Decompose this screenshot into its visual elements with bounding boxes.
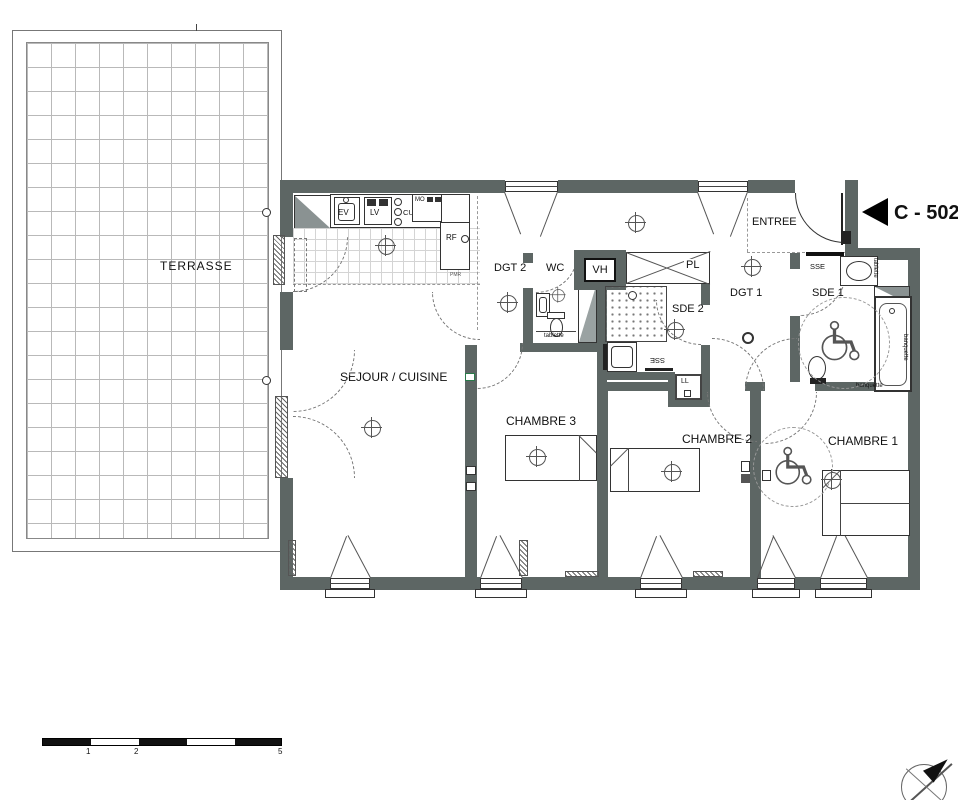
terrace-axis-tick xyxy=(196,24,197,31)
window-top-2-glass xyxy=(698,186,748,187)
kitchen-label-lv: LV xyxy=(370,208,379,217)
kitchen-label-ev: EV xyxy=(338,208,349,217)
window-top-1-glass xyxy=(505,186,558,187)
duct-box-kitchen-corner xyxy=(294,195,331,229)
wall-sde2-bottom xyxy=(603,372,673,380)
wall-ch3-ch2 xyxy=(597,383,608,590)
radiator xyxy=(519,540,528,576)
window-swing xyxy=(772,535,795,578)
wall-top-2 xyxy=(558,180,698,193)
sde1-sink-bowl xyxy=(846,261,872,281)
terrace-drain-symbol xyxy=(262,208,271,217)
ceiling-light-icon xyxy=(378,238,395,255)
window-swing xyxy=(347,535,370,578)
sejour-hall-door-swing xyxy=(432,292,480,340)
room-label-chambre3: CHAMBRE 3 xyxy=(506,414,576,428)
radiator xyxy=(288,540,296,576)
scale-label-1: 1 xyxy=(86,747,90,756)
entree-zone-boundary xyxy=(747,198,748,252)
duct-box-vh-shaft xyxy=(578,285,597,343)
dgt1-door-stop xyxy=(742,332,754,344)
wall-socket xyxy=(465,373,475,381)
wall-bottom-4 xyxy=(682,577,757,590)
kitchen-label-mo: MO xyxy=(415,197,425,203)
wc-sink-bowl xyxy=(539,297,547,313)
ceiling-light-icon xyxy=(744,259,761,276)
sde1-shelf-bar xyxy=(806,252,844,256)
washing-machine-label-ll: LL xyxy=(681,378,689,385)
window-bottom-4-glass xyxy=(757,583,795,584)
washing-machine-symbol xyxy=(684,390,691,397)
hob-burner xyxy=(394,218,402,226)
entrance-door-swing xyxy=(795,193,845,243)
radiator xyxy=(275,396,288,478)
wall-left-1 xyxy=(280,193,293,237)
room-label-pl: PL xyxy=(684,259,701,271)
sde2-shelf xyxy=(645,368,673,371)
wall-top-1 xyxy=(280,180,505,193)
room-label-sejour: SEJOUR / CUISINE xyxy=(340,370,447,384)
window-sill xyxy=(635,589,687,598)
chambre1-bed-mid-line xyxy=(840,503,910,504)
wall-ll-niche-bottom xyxy=(668,400,710,407)
french-door-swing-upper xyxy=(293,350,355,412)
scale-bar-segment xyxy=(43,739,91,745)
window-swing xyxy=(844,535,867,578)
unit-marker-arrow-icon xyxy=(862,198,888,226)
bathtub-faucet xyxy=(889,308,895,314)
window-top-1-swing xyxy=(540,192,558,237)
microwave-knob xyxy=(427,197,433,202)
ceiling-light-icon xyxy=(664,464,681,481)
wall-left-2 xyxy=(280,292,293,350)
wall-sde1-left-top xyxy=(790,253,800,269)
window-bottom-2-glass xyxy=(480,583,522,584)
room-label-chambre1: CHAMBRE 1 xyxy=(828,434,898,448)
duct-triangle xyxy=(579,286,596,342)
vh-label-box: VH xyxy=(584,258,616,282)
window-top-2-swing xyxy=(730,192,748,237)
hob-burner xyxy=(394,208,402,216)
window-bottom-5-glass xyxy=(820,583,867,584)
room-label-entree: ENTREE xyxy=(752,216,797,228)
ceiling-light-icon xyxy=(529,449,546,466)
french-door-swing-lower xyxy=(293,416,355,478)
microwave-knob xyxy=(435,197,441,202)
ceiling-light-icon xyxy=(500,295,517,312)
chambre3-door-swing xyxy=(477,343,523,389)
dgt1-door-swing-right xyxy=(745,338,797,390)
ceiling-light-icon xyxy=(628,215,645,232)
entrance-door-closer xyxy=(842,231,851,244)
chambre3-bed xyxy=(505,435,597,481)
wall-bottom-3 xyxy=(522,577,640,590)
window-bottom-1-glass xyxy=(330,583,370,584)
bathtub-label-banquette-side: banquette xyxy=(902,334,908,361)
ceiling-light-icon xyxy=(824,472,841,489)
sde1-label-tablette: tablette xyxy=(872,258,878,278)
wheelchair-icon xyxy=(818,320,862,364)
room-label-dgt1: DGT 1 xyxy=(730,287,762,299)
window-sill xyxy=(752,589,800,598)
wall-top-3 xyxy=(748,180,795,193)
wall-bottom-2 xyxy=(370,577,480,590)
radiator xyxy=(693,571,723,577)
window-sill xyxy=(815,589,872,598)
dishwasher-knob xyxy=(367,199,376,206)
window-swing xyxy=(659,535,682,578)
sde2-sink-bowl xyxy=(611,346,633,368)
window-sill xyxy=(325,589,375,598)
kitchen-label-rf: RF xyxy=(446,233,457,242)
terrace-tile-grid xyxy=(26,42,269,539)
radiator xyxy=(565,571,599,577)
chambre2-bed xyxy=(610,448,700,492)
wall-wc-left xyxy=(523,288,533,345)
ceiling-light-icon xyxy=(364,420,381,437)
window-bottom-3-glass xyxy=(640,583,682,584)
sde2-shower-drain xyxy=(628,291,637,300)
window-swing xyxy=(640,536,657,578)
wall-socket xyxy=(762,470,771,481)
floor-plan: TERRASSE xyxy=(0,0,958,800)
terrace-drain-symbol xyxy=(262,376,271,385)
wall-sde2-right-top xyxy=(701,283,710,305)
chambre3-bed-pillow-line xyxy=(579,435,580,481)
ceiling-light-icon xyxy=(552,289,565,302)
room-label-dgt2: DGT 2 xyxy=(494,262,526,274)
window-sill xyxy=(475,589,527,598)
wall-entrance-right xyxy=(845,193,858,253)
wall-top-4 xyxy=(845,180,858,193)
north-arrow-icon xyxy=(895,758,958,800)
room-label-vh: VH xyxy=(592,264,607,276)
fridge-symbol xyxy=(461,235,469,243)
window-swing xyxy=(820,536,837,578)
room-label-terrasse: TERRASSE xyxy=(160,259,233,273)
dishwasher-knob xyxy=(379,199,388,206)
scale-label-2: 2 xyxy=(134,747,138,756)
scale-bar-segment xyxy=(235,739,281,745)
chambre2-bed-pillow-line xyxy=(628,448,629,492)
scale-label-5: 5 xyxy=(278,747,282,756)
wheelchair-icon xyxy=(772,446,814,488)
kitchen-faucet xyxy=(343,197,349,203)
wc-label-tablette: tablette xyxy=(544,333,564,339)
duct-triangle xyxy=(295,196,330,228)
window-top-1-swing xyxy=(504,192,521,234)
hob-burner xyxy=(394,198,402,206)
wc-shelf xyxy=(536,331,576,332)
radiator xyxy=(273,235,285,285)
sde1-label-sse: SSE xyxy=(810,262,825,271)
wall-socket xyxy=(741,474,750,483)
unit-label: C - 502 xyxy=(894,202,958,225)
kitchen-label-pmr: PMR xyxy=(450,272,461,278)
terrace-slider-leaf xyxy=(294,238,307,292)
wc-door-swing xyxy=(535,257,577,293)
ceiling-light-icon xyxy=(667,322,684,339)
wall-socket xyxy=(466,482,476,491)
sde2-label-sse: SSE xyxy=(650,356,665,365)
window-top-2-swing xyxy=(697,192,714,234)
room-label-chambre2: CHAMBRE 2 xyxy=(682,432,752,446)
scale-bar-segment xyxy=(139,739,187,745)
kitchen-fridge xyxy=(440,222,470,270)
wall-bottom-1 xyxy=(280,577,330,590)
wall-socket xyxy=(741,461,750,472)
window-swing xyxy=(330,536,347,578)
window-swing xyxy=(480,536,497,578)
scale-bar xyxy=(42,738,282,746)
wall-socket xyxy=(466,466,476,475)
